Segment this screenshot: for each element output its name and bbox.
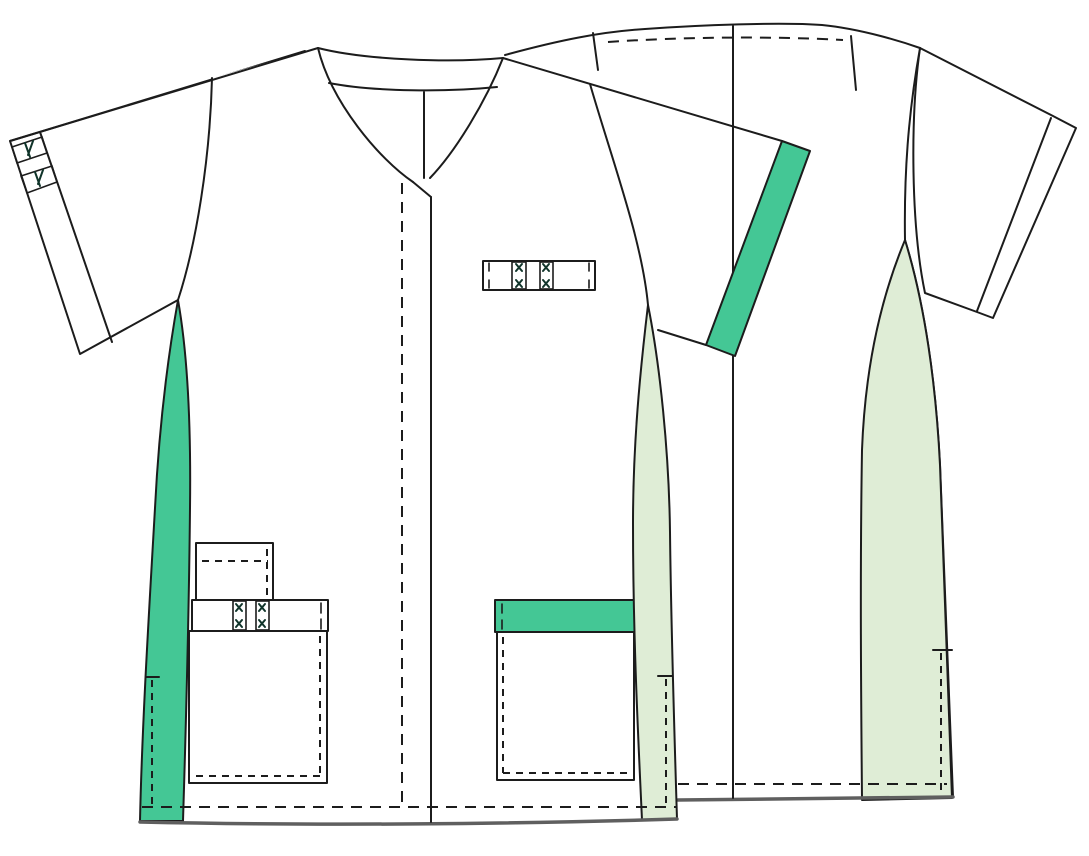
left-small-pocket xyxy=(196,543,273,601)
chest-pocket-band xyxy=(483,261,595,290)
tunic-technical-drawing xyxy=(0,0,1089,856)
left-large-pocket xyxy=(189,631,327,783)
right-patch-pocket xyxy=(497,632,634,780)
right-pocket-green-band xyxy=(495,600,635,632)
right-pocket-group xyxy=(495,600,635,780)
drawing-canvas xyxy=(0,0,1089,856)
chest-pocket-band-body xyxy=(483,261,595,290)
